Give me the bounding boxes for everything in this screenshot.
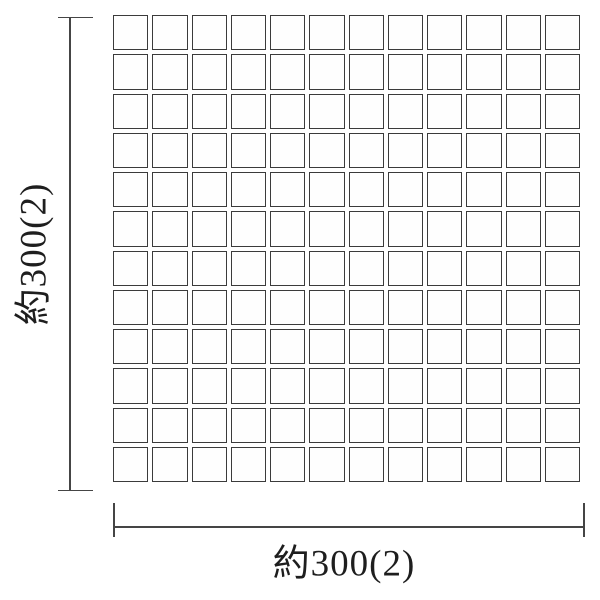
tile-cell: [231, 94, 266, 129]
tile-cell: [152, 251, 187, 286]
horizontal-dimension-label: 約300(2): [273, 546, 416, 583]
tile-cell: [192, 54, 227, 89]
tile-cell: [506, 290, 541, 325]
tile-cell: [349, 172, 384, 207]
tile-cell: [349, 211, 384, 246]
tile-cell: [427, 368, 462, 403]
tile-cell: [113, 368, 148, 403]
tile-cell: [427, 408, 462, 443]
tile-cell: [152, 290, 187, 325]
tile-cell: [152, 211, 187, 246]
tile-cell: [231, 251, 266, 286]
tile-cell: [231, 329, 266, 364]
tile-cell: [309, 94, 344, 129]
tile-cell: [506, 447, 541, 482]
horizontal-dimension-line: [114, 526, 584, 528]
tile-cell: [388, 133, 423, 168]
tile-cell: [388, 15, 423, 50]
tile-cell: [427, 251, 462, 286]
tile-cell: [349, 329, 384, 364]
tile-cell: [427, 290, 462, 325]
tile-cell: [270, 251, 305, 286]
tile-cell: [466, 368, 501, 403]
tile-cell: [506, 251, 541, 286]
tile-cell: [113, 290, 148, 325]
tile-cell: [270, 15, 305, 50]
tile-cell: [545, 447, 580, 482]
tile-cell: [466, 15, 501, 50]
tile-cell: [388, 329, 423, 364]
tile-cell: [466, 211, 501, 246]
tile-cell: [113, 211, 148, 246]
tile-cell: [466, 54, 501, 89]
tile-cell: [231, 15, 266, 50]
tile-cell: [466, 251, 501, 286]
tile-cell: [231, 290, 266, 325]
tile-cell: [466, 172, 501, 207]
tile-cell: [309, 172, 344, 207]
tile-cell: [506, 211, 541, 246]
tile-cell: [192, 94, 227, 129]
tile-cell: [113, 447, 148, 482]
tile-cell: [113, 15, 148, 50]
tile-cell: [152, 329, 187, 364]
tile-cell: [545, 408, 580, 443]
tile-cell: [545, 211, 580, 246]
tile-cell: [506, 408, 541, 443]
tile-cell: [192, 368, 227, 403]
tile-cell: [192, 408, 227, 443]
tile-cell: [545, 172, 580, 207]
tile-cell: [427, 15, 462, 50]
tile-cell: [466, 447, 501, 482]
tile-cell: [466, 408, 501, 443]
tile-cell: [192, 172, 227, 207]
horizontal-dimension-left-tick: [113, 503, 115, 537]
tile-cell: [270, 94, 305, 129]
tile-cell: [506, 329, 541, 364]
tile-cell: [388, 172, 423, 207]
tile-cell: [192, 329, 227, 364]
tile-cell: [152, 172, 187, 207]
tile-cell: [545, 368, 580, 403]
tile-cell: [388, 447, 423, 482]
tile-cell: [152, 94, 187, 129]
tile-cell: [192, 290, 227, 325]
tile-cell: [152, 15, 187, 50]
tile-cell: [545, 15, 580, 50]
tile-cell: [113, 54, 148, 89]
tile-cell: [152, 447, 187, 482]
tile-cell: [231, 368, 266, 403]
tile-cell: [231, 211, 266, 246]
tile-cell: [349, 54, 384, 89]
tile-cell: [349, 94, 384, 129]
tile-cell: [545, 133, 580, 168]
tile-cell: [349, 368, 384, 403]
tile-cell: [192, 15, 227, 50]
tile-cell: [309, 15, 344, 50]
tile-cell: [545, 251, 580, 286]
tile-cell: [388, 211, 423, 246]
tile-cell: [506, 133, 541, 168]
tile-cell: [113, 251, 148, 286]
tile-cell: [466, 94, 501, 129]
tile-cell: [231, 408, 266, 443]
tile-cell: [192, 447, 227, 482]
tile-cell: [545, 290, 580, 325]
tile-cell: [309, 133, 344, 168]
tile-cell: [309, 329, 344, 364]
tile-cell: [309, 447, 344, 482]
tile-cell: [466, 133, 501, 168]
tile-cell: [388, 251, 423, 286]
tile-cell: [388, 54, 423, 89]
tile-cell: [270, 447, 305, 482]
tile-cell: [466, 329, 501, 364]
tile-cell: [270, 133, 305, 168]
tile-cell: [231, 447, 266, 482]
tile-cell: [349, 15, 384, 50]
tile-cell: [309, 54, 344, 89]
vertical-dimension-label: 約300(2): [16, 183, 53, 326]
tile-cell: [506, 172, 541, 207]
tile-sheet-dimension-diagram: 約300(2) 約300(2): [0, 0, 600, 600]
tile-cell: [545, 54, 580, 89]
tile-cell: [427, 94, 462, 129]
tile-cell: [349, 447, 384, 482]
tile-cell: [113, 133, 148, 168]
tile-cell: [349, 408, 384, 443]
vertical-dimension-top-tick: [58, 17, 93, 19]
tile-cell: [231, 133, 266, 168]
tile-cell: [427, 211, 462, 246]
tile-cell: [152, 408, 187, 443]
tile-cell: [545, 94, 580, 129]
tile-cell: [309, 290, 344, 325]
tile-cell: [270, 54, 305, 89]
tile-cell: [270, 408, 305, 443]
tile-cell: [427, 329, 462, 364]
tile-cell: [192, 251, 227, 286]
tile-cell: [309, 368, 344, 403]
tile-cell: [388, 408, 423, 443]
tile-cell: [427, 54, 462, 89]
tile-cell: [466, 290, 501, 325]
tile-cell: [270, 290, 305, 325]
tile-cell: [231, 54, 266, 89]
tile-cell: [270, 211, 305, 246]
tile-cell: [506, 94, 541, 129]
tile-cell: [388, 290, 423, 325]
tile-cell: [309, 408, 344, 443]
tile-cell: [309, 211, 344, 246]
tile-cell: [152, 133, 187, 168]
tile-cell: [113, 94, 148, 129]
tile-cell: [113, 329, 148, 364]
tile-cell: [506, 15, 541, 50]
tile-cell: [427, 133, 462, 168]
horizontal-dimension-right-tick: [583, 503, 585, 537]
vertical-dimension-bottom-tick: [58, 490, 93, 492]
tile-cell: [349, 290, 384, 325]
tile-cell: [506, 368, 541, 403]
tile-cell: [192, 133, 227, 168]
tile-cell: [388, 94, 423, 129]
tile-cell: [270, 368, 305, 403]
tile-cell: [349, 133, 384, 168]
tile-cell: [427, 172, 462, 207]
tile-cell: [545, 329, 580, 364]
tile-cell: [388, 368, 423, 403]
tile-cell: [427, 447, 462, 482]
tile-cell: [113, 172, 148, 207]
vertical-dimension-line: [69, 17, 71, 490]
tile-cell: [231, 172, 266, 207]
tile-cell: [270, 329, 305, 364]
tile-cell: [152, 54, 187, 89]
tile-cell: [192, 211, 227, 246]
tile-grid: [113, 15, 580, 482]
tile-cell: [270, 172, 305, 207]
tile-cell: [506, 54, 541, 89]
tile-cell: [349, 251, 384, 286]
tile-cell: [113, 408, 148, 443]
tile-cell: [152, 368, 187, 403]
tile-cell: [309, 251, 344, 286]
